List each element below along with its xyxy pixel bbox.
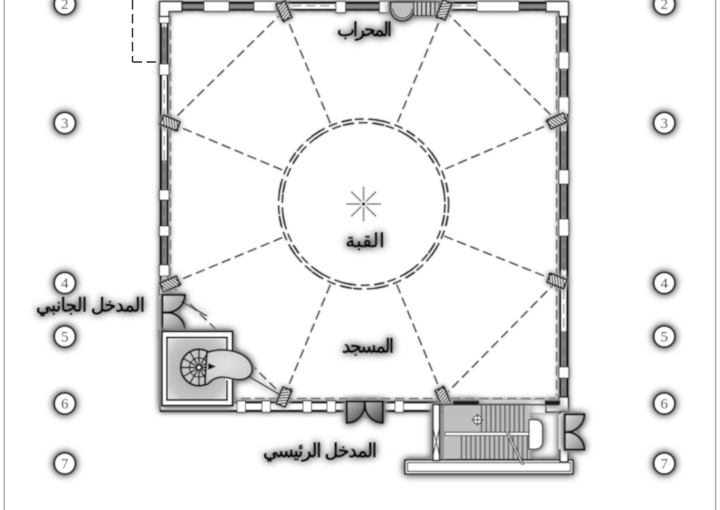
svg-text:المحراب: المحراب bbox=[337, 20, 392, 41]
svg-text:7: 7 bbox=[661, 457, 669, 473]
svg-text:القبة: القبة bbox=[346, 231, 385, 252]
svg-text:4: 4 bbox=[661, 276, 669, 292]
svg-text:4: 4 bbox=[61, 276, 69, 292]
svg-text:3: 3 bbox=[661, 116, 669, 132]
svg-text:6: 6 bbox=[61, 397, 69, 413]
svg-text:6: 6 bbox=[661, 397, 669, 413]
svg-text:2: 2 bbox=[61, 0, 69, 13]
svg-text:5: 5 bbox=[661, 330, 669, 346]
svg-text:7: 7 bbox=[61, 457, 69, 473]
svg-text:المدخل الرئيسي: المدخل الرئيسي bbox=[263, 441, 377, 463]
svg-text:2: 2 bbox=[661, 0, 669, 13]
svg-text:المدخل الجانبي: المدخل الجانبي bbox=[36, 296, 145, 318]
svg-text:3: 3 bbox=[61, 116, 69, 132]
svg-text:5: 5 bbox=[61, 330, 69, 346]
svg-text:المسجد: المسجد bbox=[342, 337, 394, 358]
